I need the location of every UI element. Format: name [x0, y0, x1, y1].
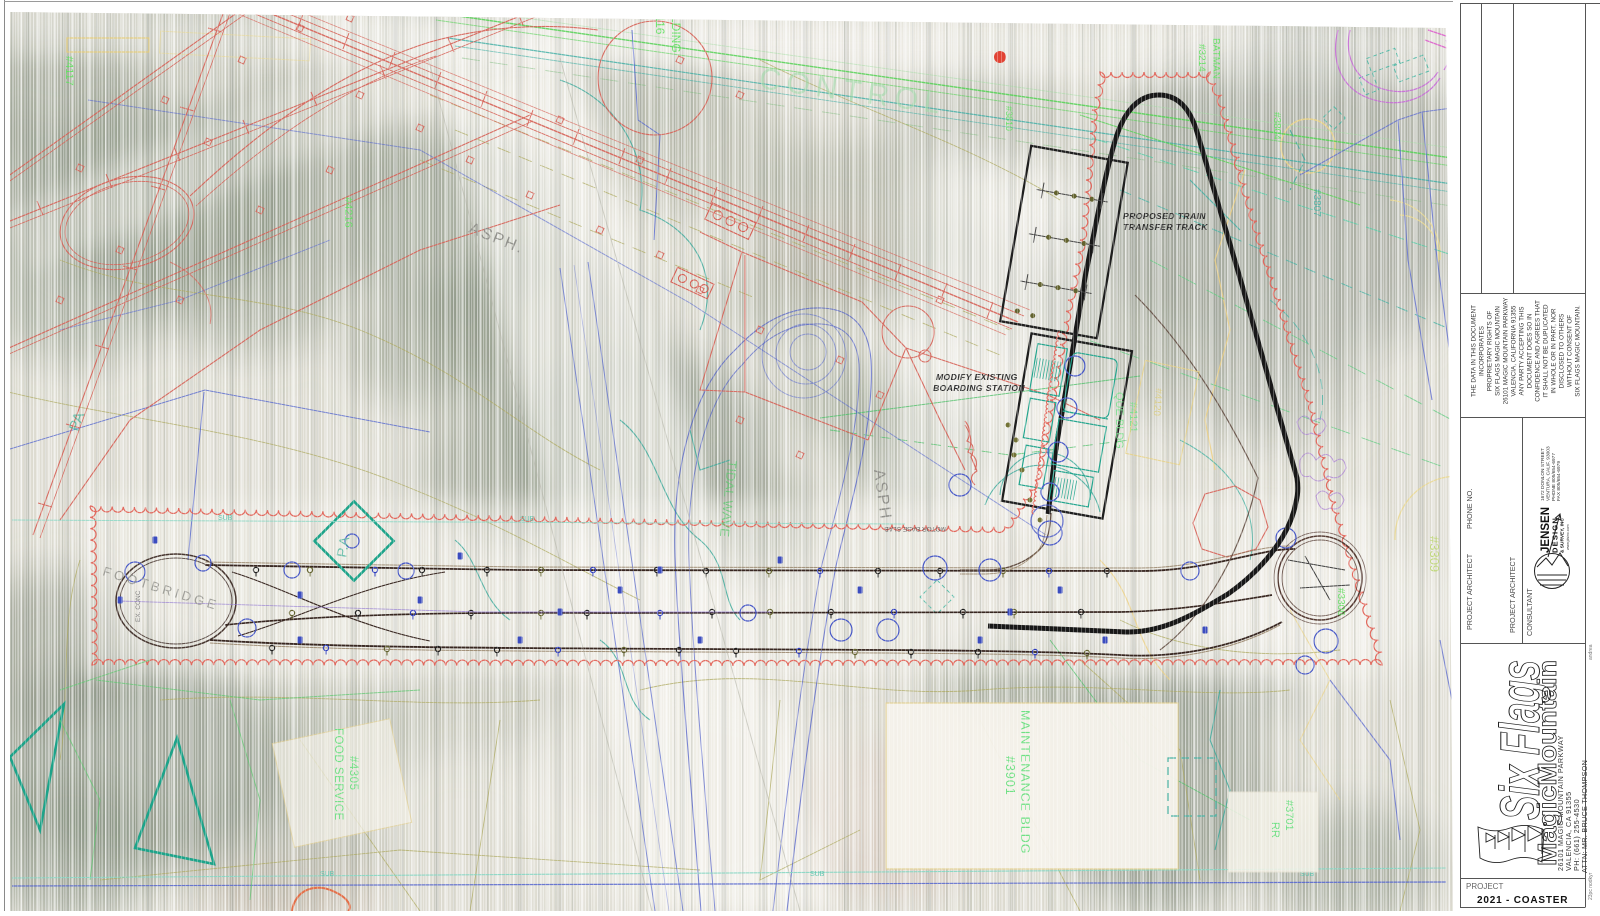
svg-text:CONFIDENCE AND AGREES THAT: CONFIDENCE AND AGREES THAT: [1535, 300, 1542, 402]
svg-text:SIX FLAGS MAGIC MOUNTAIN: SIX FLAGS MAGIC MOUNTAIN: [1495, 306, 1502, 396]
svg-text:26101 MAGIC MOUNTAIN PARKWAY: 26101 MAGIC MOUNTAIN PARKWAY: [1503, 297, 1510, 405]
svg-text:INCORPORATES: INCORPORATES: [1479, 326, 1486, 376]
svg-text:DESIGN: DESIGN: [1551, 517, 1560, 553]
svg-text:PHONE NO.: PHONE NO.: [1465, 489, 1474, 529]
svg-text:2021 - COASTER: 2021 - COASTER: [1477, 895, 1568, 906]
svg-text:DOCUMENT DOES SO IN: DOCUMENT DOES SO IN: [1527, 313, 1534, 388]
svg-text:VALENCIA, CALIFORNIA 91355: VALENCIA, CALIFORNIA 91355: [1511, 305, 1518, 396]
svg-text:VENTURA, CALIF. 93003: VENTURA, CALIF. 93003: [1545, 446, 1551, 501]
svg-text:PROJECT ARCHITECT: PROJECT ARCHITECT: [1508, 556, 1517, 633]
svg-text:www.jdsinc.com: www.jdsinc.com: [1566, 524, 1570, 550]
svg-text:CONSULTANT: CONSULTANT: [1525, 588, 1534, 636]
svg-text:WITHOUT CONSENT OF: WITHOUT CONSENT OF: [1567, 315, 1574, 387]
svg-text:PROJECT ARCHITECT: PROJECT ARCHITECT: [1465, 553, 1474, 630]
svg-text:ANY PARTY ACCEPTING THIS: ANY PARTY ACCEPTING THIS: [1519, 307, 1526, 396]
svg-text:THE DATA IN THIS DOCUMENT: THE DATA IN THIS DOCUMENT: [1471, 305, 1478, 397]
svg-text:andrea: andrea: [1588, 644, 1594, 660]
svg-text:& SURVEY, INC: & SURVEY, INC: [1560, 518, 1566, 553]
svg-text:1672 DONLON STREET: 1672 DONLON STREET: [1540, 448, 1546, 501]
svg-text:IT SHALL NOT BE DUPLICATED: IT SHALL NOT BE DUPLICATED: [1543, 304, 1550, 398]
svg-text:SIX FLAGS MAGIC MOUNTAIN.: SIX FLAGS MAGIC MOUNTAIN.: [1575, 305, 1582, 397]
svg-text:PROPRIETARY RIGHTS OF: PROPRIETARY RIGHTS OF: [1487, 311, 1494, 392]
svg-text:ATTN: MR. BRUCE THOMPSON: ATTN: MR. BRUCE THOMPSON: [1580, 760, 1589, 873]
svg-text:PROJECT: PROJECT: [1466, 882, 1503, 891]
svg-text:DISCLOSED TO OTHERS: DISCLOSED TO OTHERS: [1559, 314, 1566, 389]
svg-text:23pc nodkyr: 23pc nodkyr: [1588, 872, 1594, 900]
svg-text:PHONE 805/654-6977: PHONE 805/654-6977: [1551, 453, 1557, 501]
svg-text:FAX 805/654-6979: FAX 805/654-6979: [1556, 461, 1562, 501]
svg-text:IN WHOLE OR IN PART, NOR: IN WHOLE OR IN PART, NOR: [1551, 308, 1558, 394]
